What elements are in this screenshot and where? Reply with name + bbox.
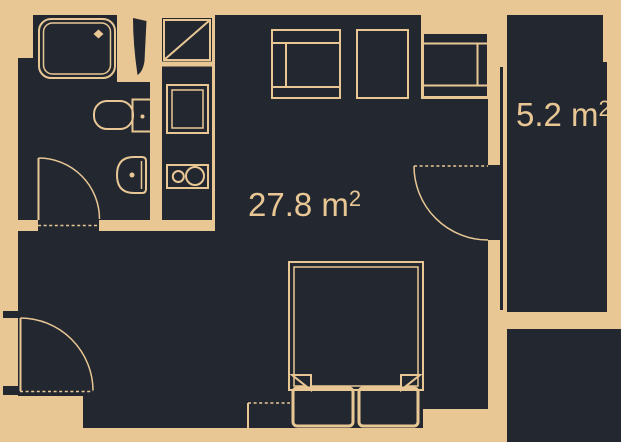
balcony-area-label: 5.2 m2	[516, 96, 611, 133]
kitchen-counter-divider	[162, 62, 212, 67]
balcony-area	[507, 15, 607, 312]
main-room-area-label: 27.8 m2	[248, 186, 361, 223]
floor-plan-canvas: 27.8 m2 5.2 m2	[0, 0, 621, 442]
kitchen	[162, 18, 212, 220]
toilet-flush-button	[141, 115, 145, 119]
window-glazing-line-lower	[500, 240, 503, 310]
window-glazing-line-upper	[500, 67, 503, 165]
closet-unit	[423, 33, 488, 97]
floor-plan-svg: 27.8 m2 5.2 m2	[0, 0, 621, 442]
right-wall-margin-patch-top	[603, 15, 621, 62]
adjacent-room-area	[507, 329, 621, 442]
door-jamb-cap-top	[3, 311, 18, 318]
door-jamb-cap-bottom	[3, 386, 18, 395]
balcony-door-opening	[488, 165, 503, 240]
kitchen-column-area	[162, 18, 212, 220]
right-wall-margin-patch	[607, 62, 621, 312]
sink-drain	[130, 173, 135, 178]
